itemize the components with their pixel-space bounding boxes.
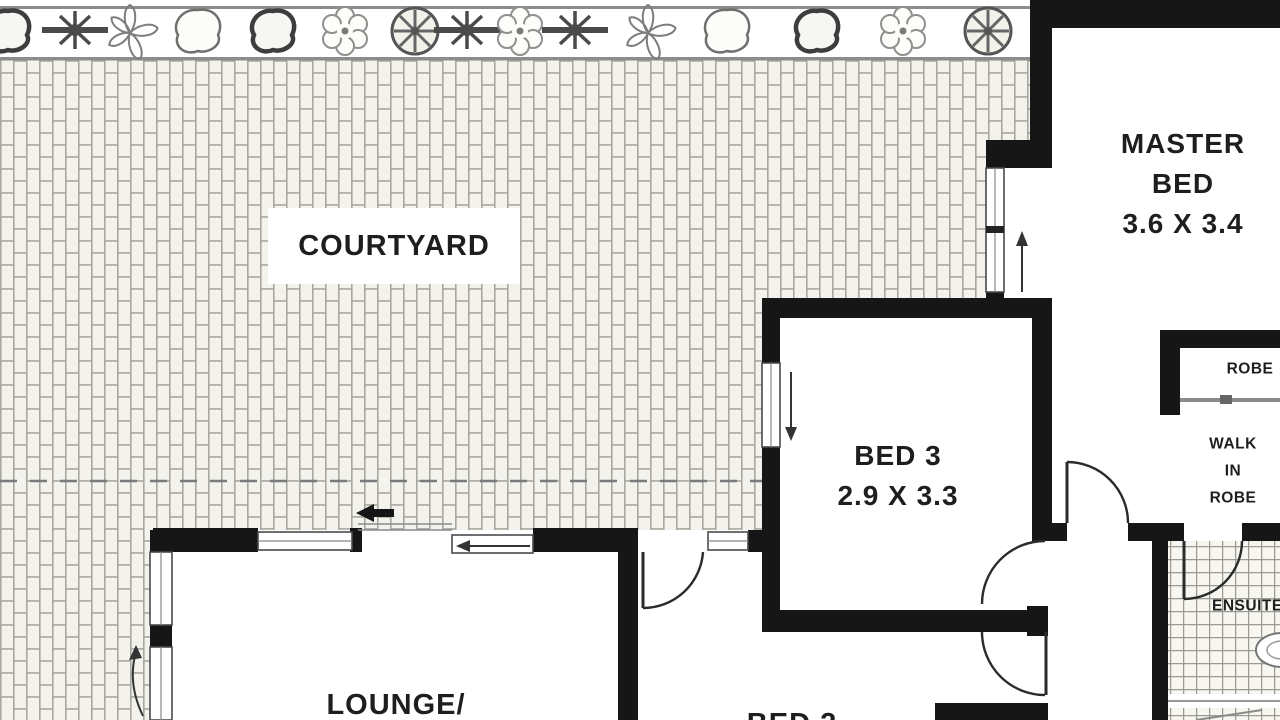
bed2-door	[982, 632, 1046, 695]
floor-plan: COURTYARD MASTER BED 3.6 X 3.4 BED 3 2.9…	[0, 0, 1280, 720]
master-bed-name-line1: MASTER	[1121, 124, 1245, 164]
lounge-top-window-3	[708, 532, 748, 550]
door-swing-arc	[643, 552, 703, 608]
lounge-left-window-upper	[150, 552, 172, 625]
master-window-arrow	[1016, 231, 1028, 292]
plant-shrub-icon	[176, 10, 220, 53]
ensuite-label: ENSUITE	[1212, 593, 1280, 620]
bed3-label: BED 3 2.9 X 3.3	[837, 436, 958, 516]
plant-tree-icon	[965, 8, 1011, 54]
robe-rail	[1180, 395, 1280, 404]
door-swing-arc	[982, 541, 1045, 604]
garden-bed	[0, 5, 1037, 61]
lounge-top-window-1	[258, 532, 352, 550]
master-bed-label: MASTER BED 3.6 X 3.4	[1121, 124, 1245, 244]
plant-shrub-icon	[705, 10, 749, 53]
walk-in-robe-line3: ROBE	[1209, 485, 1257, 512]
lounge-label: LOUNGE/	[326, 684, 465, 720]
garden-bottom-line	[0, 57, 1037, 61]
robe-label: ROBE	[1227, 356, 1274, 383]
bed3-window	[762, 363, 780, 447]
courtyard-label-box: COURTYARD	[268, 208, 520, 284]
walk-in-robe-line1: WALK	[1209, 431, 1257, 458]
courtyard-label: COURTYARD	[298, 225, 490, 267]
walk-in-robe-label: WALK IN ROBE	[1209, 431, 1257, 512]
lounge-left-window-lower	[150, 647, 172, 720]
door-swing-arc	[1067, 462, 1128, 523]
bed3-window-arrow	[785, 372, 797, 441]
bed3-dimensions: 2.9 X 3.3	[837, 476, 958, 516]
rail-bracket	[1220, 395, 1232, 404]
bed2-label: BED 2	[747, 703, 837, 720]
bed3-door	[982, 541, 1045, 604]
walk-in-robe-line2: IN	[1209, 458, 1257, 485]
walk-in-robe-door	[1067, 462, 1128, 523]
master-bed-dimensions: 3.6 X 3.4	[1121, 204, 1245, 244]
master-bed-name-line2: BED	[1121, 164, 1245, 204]
door-swing-arc	[982, 632, 1045, 695]
plant-shrub-icon	[252, 11, 294, 52]
plant-tree-icon	[392, 8, 438, 54]
floor-plan-drawing	[0, 0, 1280, 720]
plant-shrub-icon	[796, 11, 838, 52]
plant-shrub-icon	[0, 11, 29, 52]
master-bed-window	[986, 168, 1004, 292]
entry-door	[643, 552, 703, 608]
bed3-name: BED 3	[837, 436, 958, 476]
